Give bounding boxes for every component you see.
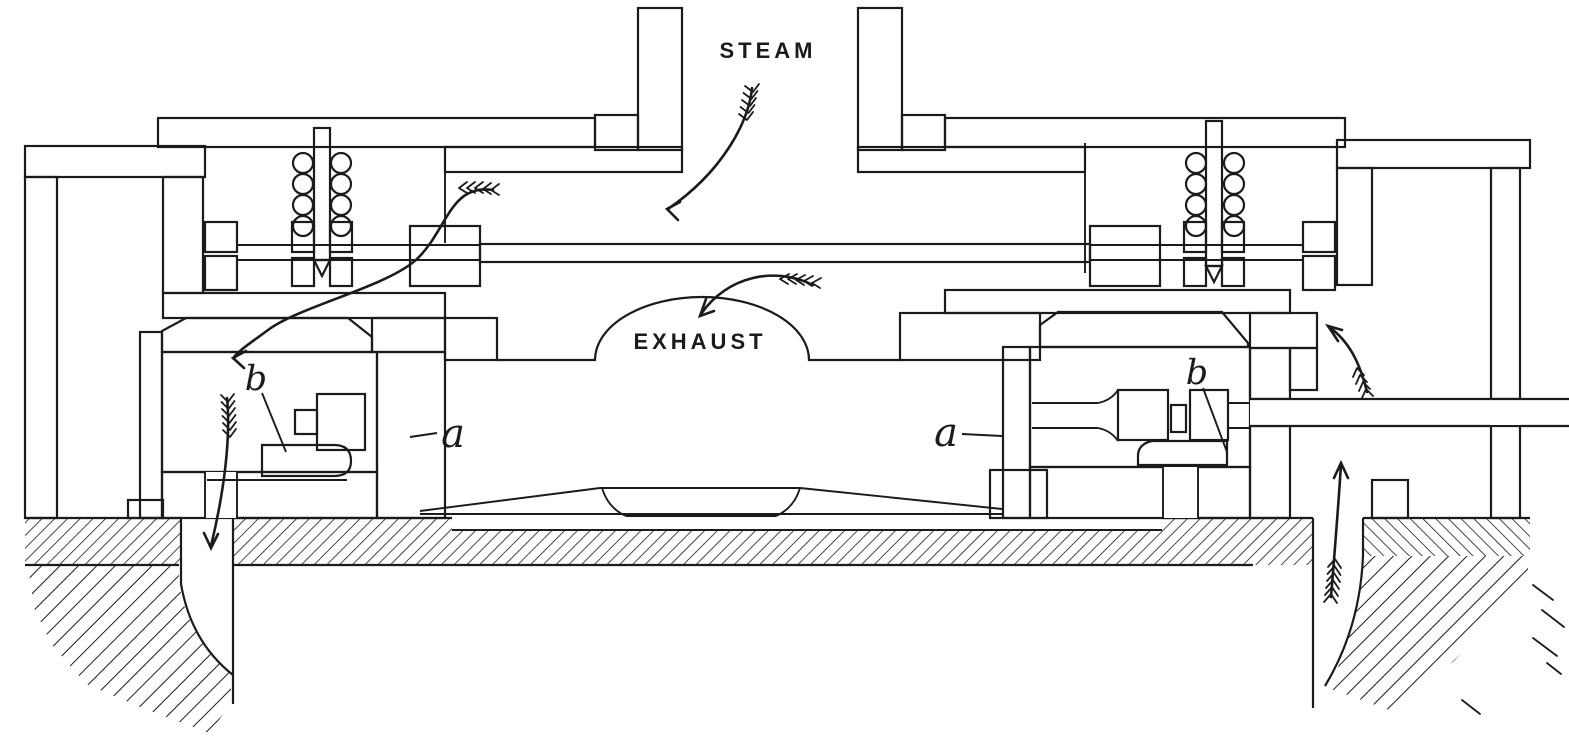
engraving-figure: STEAM EXHAUST a a b b bbox=[0, 0, 1569, 741]
steam-label: STEAM bbox=[720, 38, 817, 63]
label-a-right: a bbox=[934, 410, 958, 456]
label-b-right: b bbox=[1186, 353, 1208, 393]
exhaust-label: EXHAUST bbox=[633, 329, 766, 354]
label-a-left: a bbox=[441, 411, 465, 457]
label-b-left: b bbox=[245, 359, 267, 399]
piston-rod bbox=[1250, 399, 1569, 426]
valve-section-drawing: STEAM EXHAUST a a b b bbox=[0, 0, 1569, 741]
base-band bbox=[25, 518, 1530, 565]
base-slot bbox=[452, 518, 1162, 530]
paper-background bbox=[0, 0, 1569, 741]
